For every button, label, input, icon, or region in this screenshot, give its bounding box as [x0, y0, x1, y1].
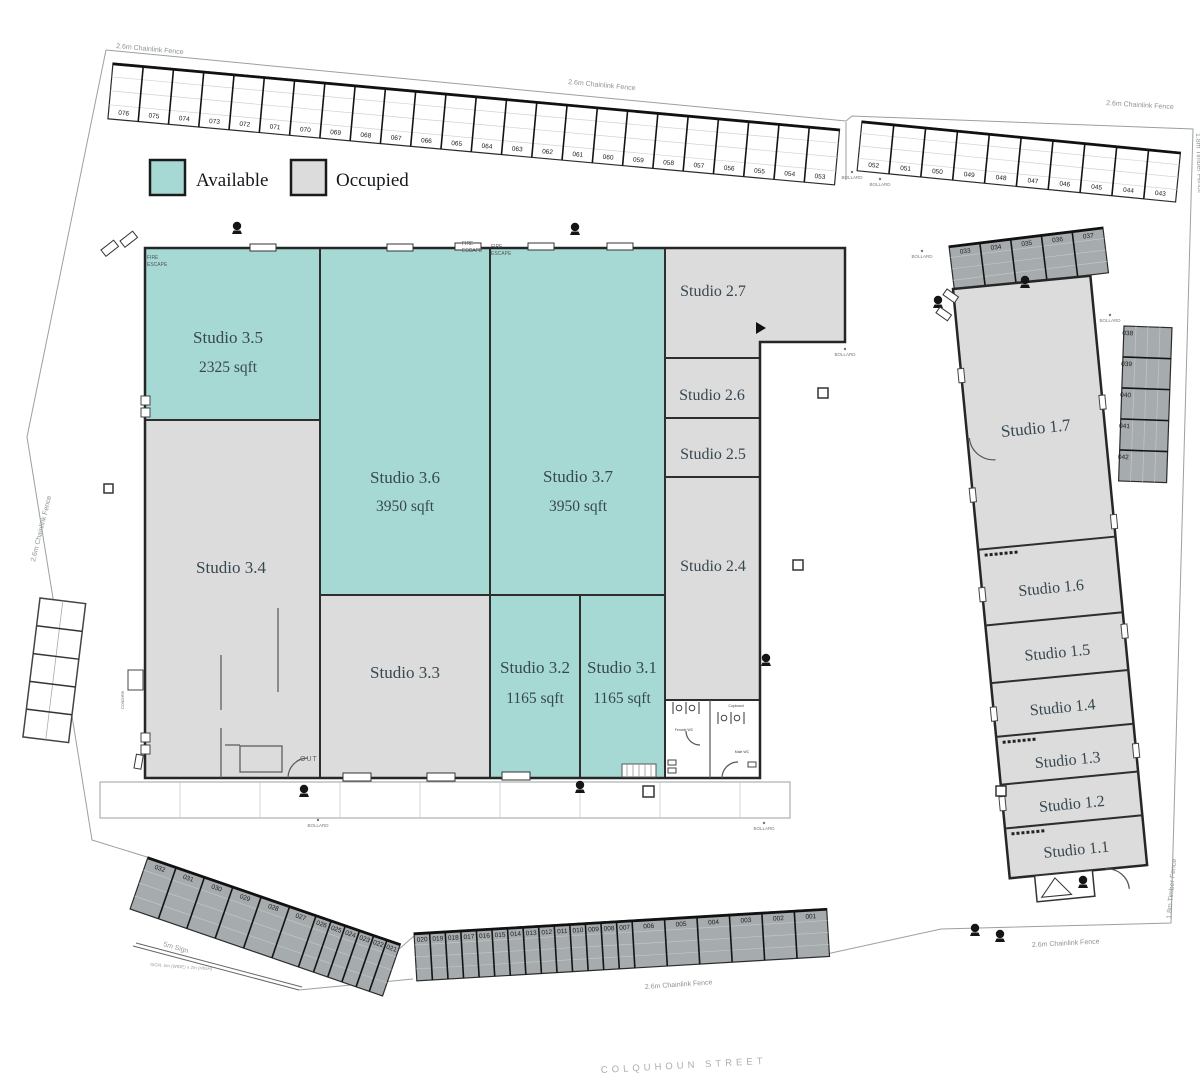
- svg-text:BOLLARD: BOLLARD: [841, 175, 863, 180]
- parking-space-number: 035: [1021, 240, 1033, 248]
- parking-space-number: 059: [633, 157, 645, 165]
- svg-text:BOLLARD: BOLLARD: [307, 823, 329, 828]
- parking-space-number: 007: [619, 924, 631, 932]
- fence-label: 1.8m Timber Fence: [1194, 133, 1200, 194]
- parking-row-bottom-left: 032031030029028027026025024023022021: [130, 857, 400, 996]
- parking-space-number: 050: [932, 168, 944, 176]
- svg-text:Concrete: Concrete: [120, 690, 125, 709]
- studio-3-6-label: Studio 3.6: [370, 468, 440, 487]
- svg-text:BOLLARD: BOLLARD: [869, 182, 891, 187]
- parking-space-number: 076: [118, 110, 130, 118]
- parking-space-number: 055: [754, 168, 766, 176]
- studio-3-1-area: 1165 sqft: [593, 690, 651, 707]
- fire-door-leaf: [134, 754, 143, 769]
- studio-2-5-label: Studio 2.5: [680, 446, 746, 463]
- parking-space-number: 014: [510, 931, 522, 939]
- parking-space-number: 044: [1123, 187, 1135, 195]
- parking-space-number: 075: [148, 112, 160, 120]
- parking-space-number: 020: [417, 936, 429, 944]
- parking-space-number: 054: [784, 170, 796, 178]
- parking-space-number: 052: [868, 162, 880, 170]
- studio-3-2-area: 1165 sqft: [506, 690, 564, 707]
- parking-space-number: 004: [708, 919, 720, 927]
- parking-space-number: 009: [588, 926, 600, 934]
- out-label: OUT: [300, 756, 318, 763]
- parking-space-number: 068: [360, 132, 372, 140]
- parking-row-top-right: 052051050049048047046045044043: [857, 121, 1180, 202]
- building-main: OUT Female WC: [101, 231, 845, 781]
- studio-2-7-label: Studio 2.7: [680, 283, 746, 300]
- site-plan: Available Occupied 076075074073072071070…: [0, 0, 1200, 1084]
- svg-text:BOLLARD: BOLLARD: [834, 352, 856, 357]
- parking-space-number: 046: [1059, 181, 1071, 189]
- bollard-icon: [232, 222, 242, 234]
- parking-space-number: 039: [1121, 361, 1132, 368]
- parking-space-number: 061: [572, 151, 584, 159]
- fence-label: 2.6m Chainlink Fence: [645, 979, 713, 991]
- parking-space-number: 043: [1155, 190, 1167, 198]
- female-wc-label: Female WC: [675, 728, 694, 732]
- stair-detail: [622, 764, 656, 777]
- parking-space-number: 051: [900, 165, 912, 173]
- concrete-label: Concrete: [120, 690, 125, 709]
- parking-space-number: 069: [330, 129, 342, 137]
- studio-3-5-area: 2325 sqft: [199, 359, 258, 376]
- fire-door-leaf: [101, 240, 119, 256]
- svg-text:SIGN: 5m (WIDE) x 2m (HIGH): SIGN: 5m (WIDE) x 2m (HIGH): [150, 962, 213, 971]
- svg-text:BOLLARD: BOLLARD: [911, 254, 933, 259]
- bollard-icon: [570, 223, 580, 235]
- svg-text:ESCAPE: ESCAPE: [491, 251, 512, 257]
- street-label: COLQUHOUN STREET: [601, 1056, 767, 1076]
- parking-space-number: 015: [494, 932, 506, 940]
- studio-3-7-room: [490, 248, 665, 595]
- parking-space-number: 017: [463, 933, 475, 941]
- parking-space-number: 042: [1118, 454, 1129, 461]
- parking-space-number: 040: [1120, 392, 1131, 399]
- parking-space-number: 012: [541, 929, 553, 937]
- fence-label: 2.6m Chainlink Fence: [1106, 100, 1174, 111]
- bollard-icon: [995, 930, 1005, 942]
- studio-3-1-label: Studio 3.1: [587, 658, 657, 677]
- parking-space-number: 033: [959, 247, 971, 255]
- studio-3-4-label: Studio 3.4: [196, 558, 266, 577]
- cupboard-label: Cupboard: [728, 704, 743, 708]
- parking-space-number: 008: [603, 925, 615, 933]
- legend: Available Occupied: [150, 160, 409, 195]
- parking-space-number: 010: [572, 927, 584, 935]
- parking-space-number: 056: [723, 165, 735, 173]
- parking-space-number: 002: [773, 915, 785, 923]
- svg-text:ESCAPE: ESCAPE: [147, 262, 168, 268]
- parking-row-bottom-center: 0200190180170160150140130120110100090080…: [414, 908, 830, 980]
- studio-2-4-label: Studio 2.4: [680, 558, 746, 575]
- legend-available-swatch: [150, 160, 185, 195]
- legend-occupied-label: Occupied: [336, 170, 409, 191]
- studio-2-4-room: [665, 477, 760, 700]
- parking-space-number: 034: [990, 244, 1002, 252]
- studio-3-7-label: Studio 3.7: [543, 467, 613, 486]
- parking-space-number: 060: [602, 154, 614, 162]
- svg-text:5m Sign: 5m Sign: [162, 941, 189, 955]
- legend-available-label: Available: [196, 170, 268, 191]
- parking-space-number: 071: [269, 123, 281, 131]
- parking-space-number: 070: [300, 126, 312, 134]
- svg-text:COLQUHOUN STREET: COLQUHOUN STREET: [601, 1056, 767, 1076]
- studio-3-6-area: 3950 sqft: [376, 498, 435, 515]
- parking-space-number: 013: [526, 930, 538, 938]
- bollard-icon: [970, 924, 980, 936]
- studio-3-2-room: [490, 595, 580, 778]
- studio-3-5-label: Studio 3.5: [193, 328, 263, 347]
- parking-space-number: 019: [432, 935, 444, 943]
- wc-block: [665, 700, 760, 778]
- fence-label: 1.8m Timber Fence: [1166, 858, 1178, 919]
- parking-space-number: 006: [643, 923, 655, 931]
- parking-space-number: 041: [1119, 423, 1130, 430]
- parking-space-number: 073: [209, 118, 221, 126]
- studio-3-4-room: [145, 420, 320, 778]
- studio-3-3-room: [320, 595, 490, 778]
- studio-3-6-room: [320, 248, 490, 595]
- svg-text:FIRE: FIRE: [462, 241, 474, 247]
- parking-space-number: 045: [1091, 184, 1103, 192]
- parking-space-number: 038: [1122, 330, 1133, 337]
- parking-space-number: 048: [995, 174, 1007, 182]
- parking-row-right-column: 038039040041042: [1117, 326, 1172, 483]
- walkway: [100, 782, 790, 818]
- studio-2-6-label: Studio 2.6: [679, 387, 745, 404]
- bollard-icon: [761, 654, 771, 666]
- parking-space-number: 001: [805, 913, 817, 921]
- svg-text:FIRE: FIRE: [491, 244, 503, 250]
- parking-space-number: 005: [675, 921, 687, 929]
- parking-space-number: 062: [542, 148, 554, 156]
- parking-space-number: 058: [663, 159, 675, 167]
- studio-3-7-area: 3950 sqft: [549, 498, 608, 515]
- svg-text:BOLLARD: BOLLARD: [753, 826, 775, 831]
- sign-detail-label: SIGN: 5m (WIDE) x 2m (HIGH): [150, 962, 213, 971]
- parking-space-number: 072: [239, 121, 251, 129]
- parking-space-number: 049: [963, 171, 975, 179]
- parking-space-number: 067: [390, 134, 402, 142]
- parking-space-number: 016: [479, 932, 491, 940]
- fence-label: 2.6m Chainlink Fence: [30, 495, 53, 562]
- parking-row-top-left: 0760750740730720710700690680670660650640…: [108, 63, 840, 185]
- parking-space-number: 066: [421, 137, 433, 145]
- parking-space-number: 047: [1027, 177, 1039, 185]
- parking-space-number: 053: [814, 173, 826, 181]
- parking-space-number: 065: [451, 140, 463, 148]
- bollard-icon: [933, 296, 943, 308]
- concrete-grid: [23, 598, 86, 743]
- svg-text:ESCAPE: ESCAPE: [462, 248, 483, 254]
- sign-label: 5m Sign: [162, 941, 189, 955]
- svg-text:BOLLARD: BOLLARD: [1099, 318, 1121, 323]
- parking-space-number: 037: [1083, 232, 1095, 240]
- fence-label: 2.6m Chainlink Fence: [568, 79, 636, 92]
- parking-space-number: 003: [740, 917, 752, 925]
- legend-occupied-swatch: [291, 160, 326, 195]
- parking-space-number: 036: [1052, 236, 1064, 244]
- parking-space-number: 011: [557, 928, 568, 936]
- parking-space-number: 057: [693, 162, 705, 170]
- studio-3-2-label: Studio 3.2: [500, 658, 570, 677]
- parking-space-number: 074: [178, 115, 190, 123]
- male-wc-label: Male WC: [735, 750, 750, 754]
- fence-label: 2.6m Chainlink Fence: [1032, 938, 1100, 949]
- studio-3-1-room: [580, 595, 665, 778]
- svg-text:FIRE: FIRE: [147, 255, 159, 261]
- parking-space-number: 018: [448, 934, 460, 942]
- parking-space-number: 064: [481, 143, 493, 151]
- fire-door-leaf: [120, 231, 138, 247]
- studio-3-3-label: Studio 3.3: [370, 663, 440, 682]
- parking-space-number: 063: [512, 146, 524, 154]
